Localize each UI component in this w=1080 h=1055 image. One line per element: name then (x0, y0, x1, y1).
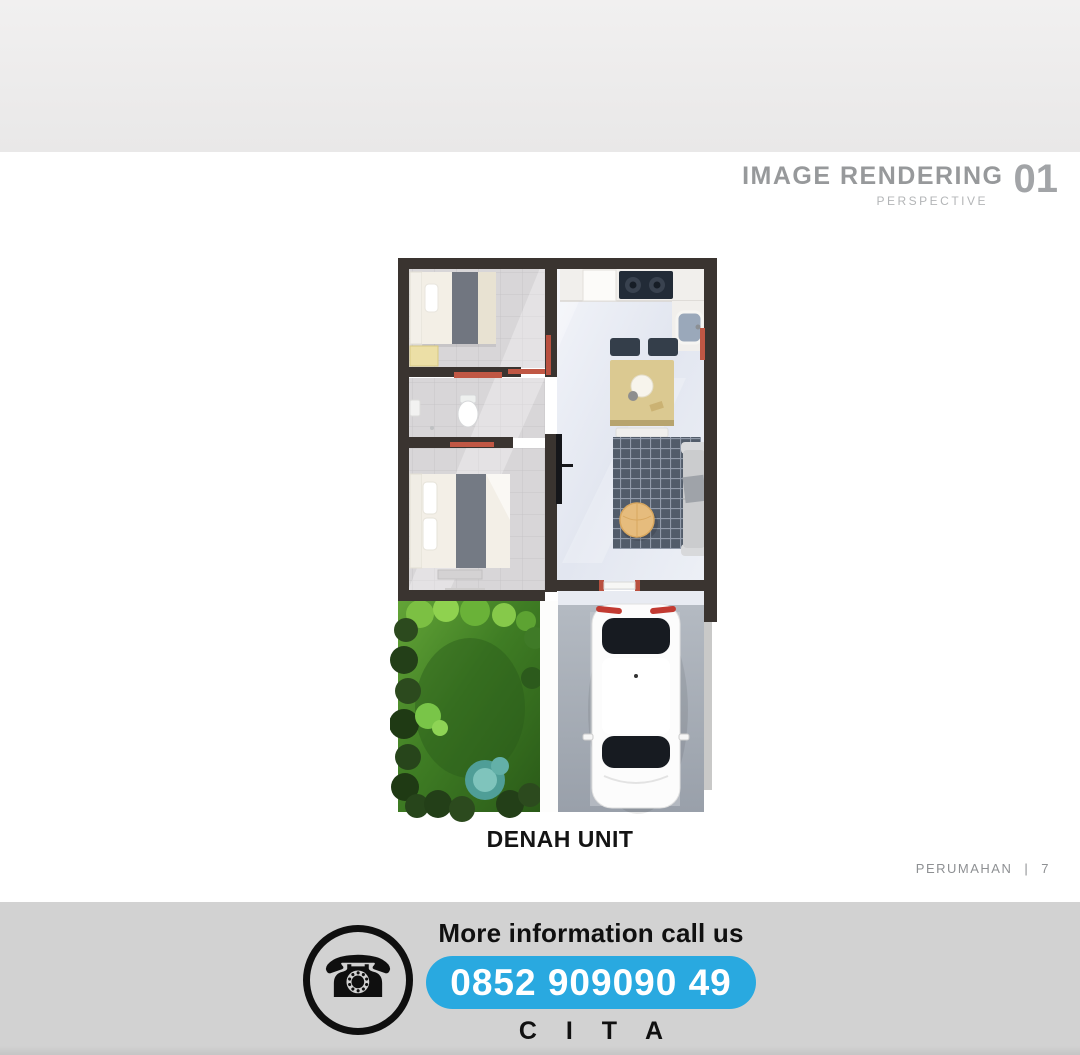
garden (390, 596, 546, 822)
page-meta: PERUMAHAN | 7 (916, 861, 1050, 876)
car (583, 604, 689, 814)
contact-block: More information call us 0852 909090 49 … (428, 918, 754, 1046)
floor-plan-image (390, 228, 730, 822)
header-number: 01 (1014, 160, 1059, 198)
brand-text: C I T A (508, 1017, 674, 1046)
living-area (613, 437, 707, 556)
header-subtitle: PERSPECTIVE (742, 194, 988, 208)
top-gray-band (0, 0, 1080, 152)
header: IMAGE RENDERING 01 PERSPECTIVE (742, 160, 1058, 208)
header-title: IMAGE RENDERING (742, 160, 1003, 193)
floor-plan-svg (390, 228, 730, 822)
page-number: 7 (1041, 861, 1050, 876)
telephone-icon: ☎ (322, 949, 394, 1007)
page-meta-separator: | (1024, 861, 1029, 876)
phone-badge-circle: ☎ (303, 925, 413, 1035)
phone-number-pill[interactable]: 0852 909090 49 (426, 956, 756, 1009)
presentation-page: IMAGE RENDERING 01 PERSPECTIVE (0, 0, 1080, 1055)
page-meta-label: PERUMAHAN (916, 861, 1013, 876)
footer-contact-bar: ☎ More information call us 0852 909090 4… (0, 902, 1080, 1055)
header-line: IMAGE RENDERING 01 (742, 160, 1058, 198)
contact-heading: More information call us (438, 918, 743, 949)
plan-caption: DENAH UNIT (390, 826, 730, 853)
